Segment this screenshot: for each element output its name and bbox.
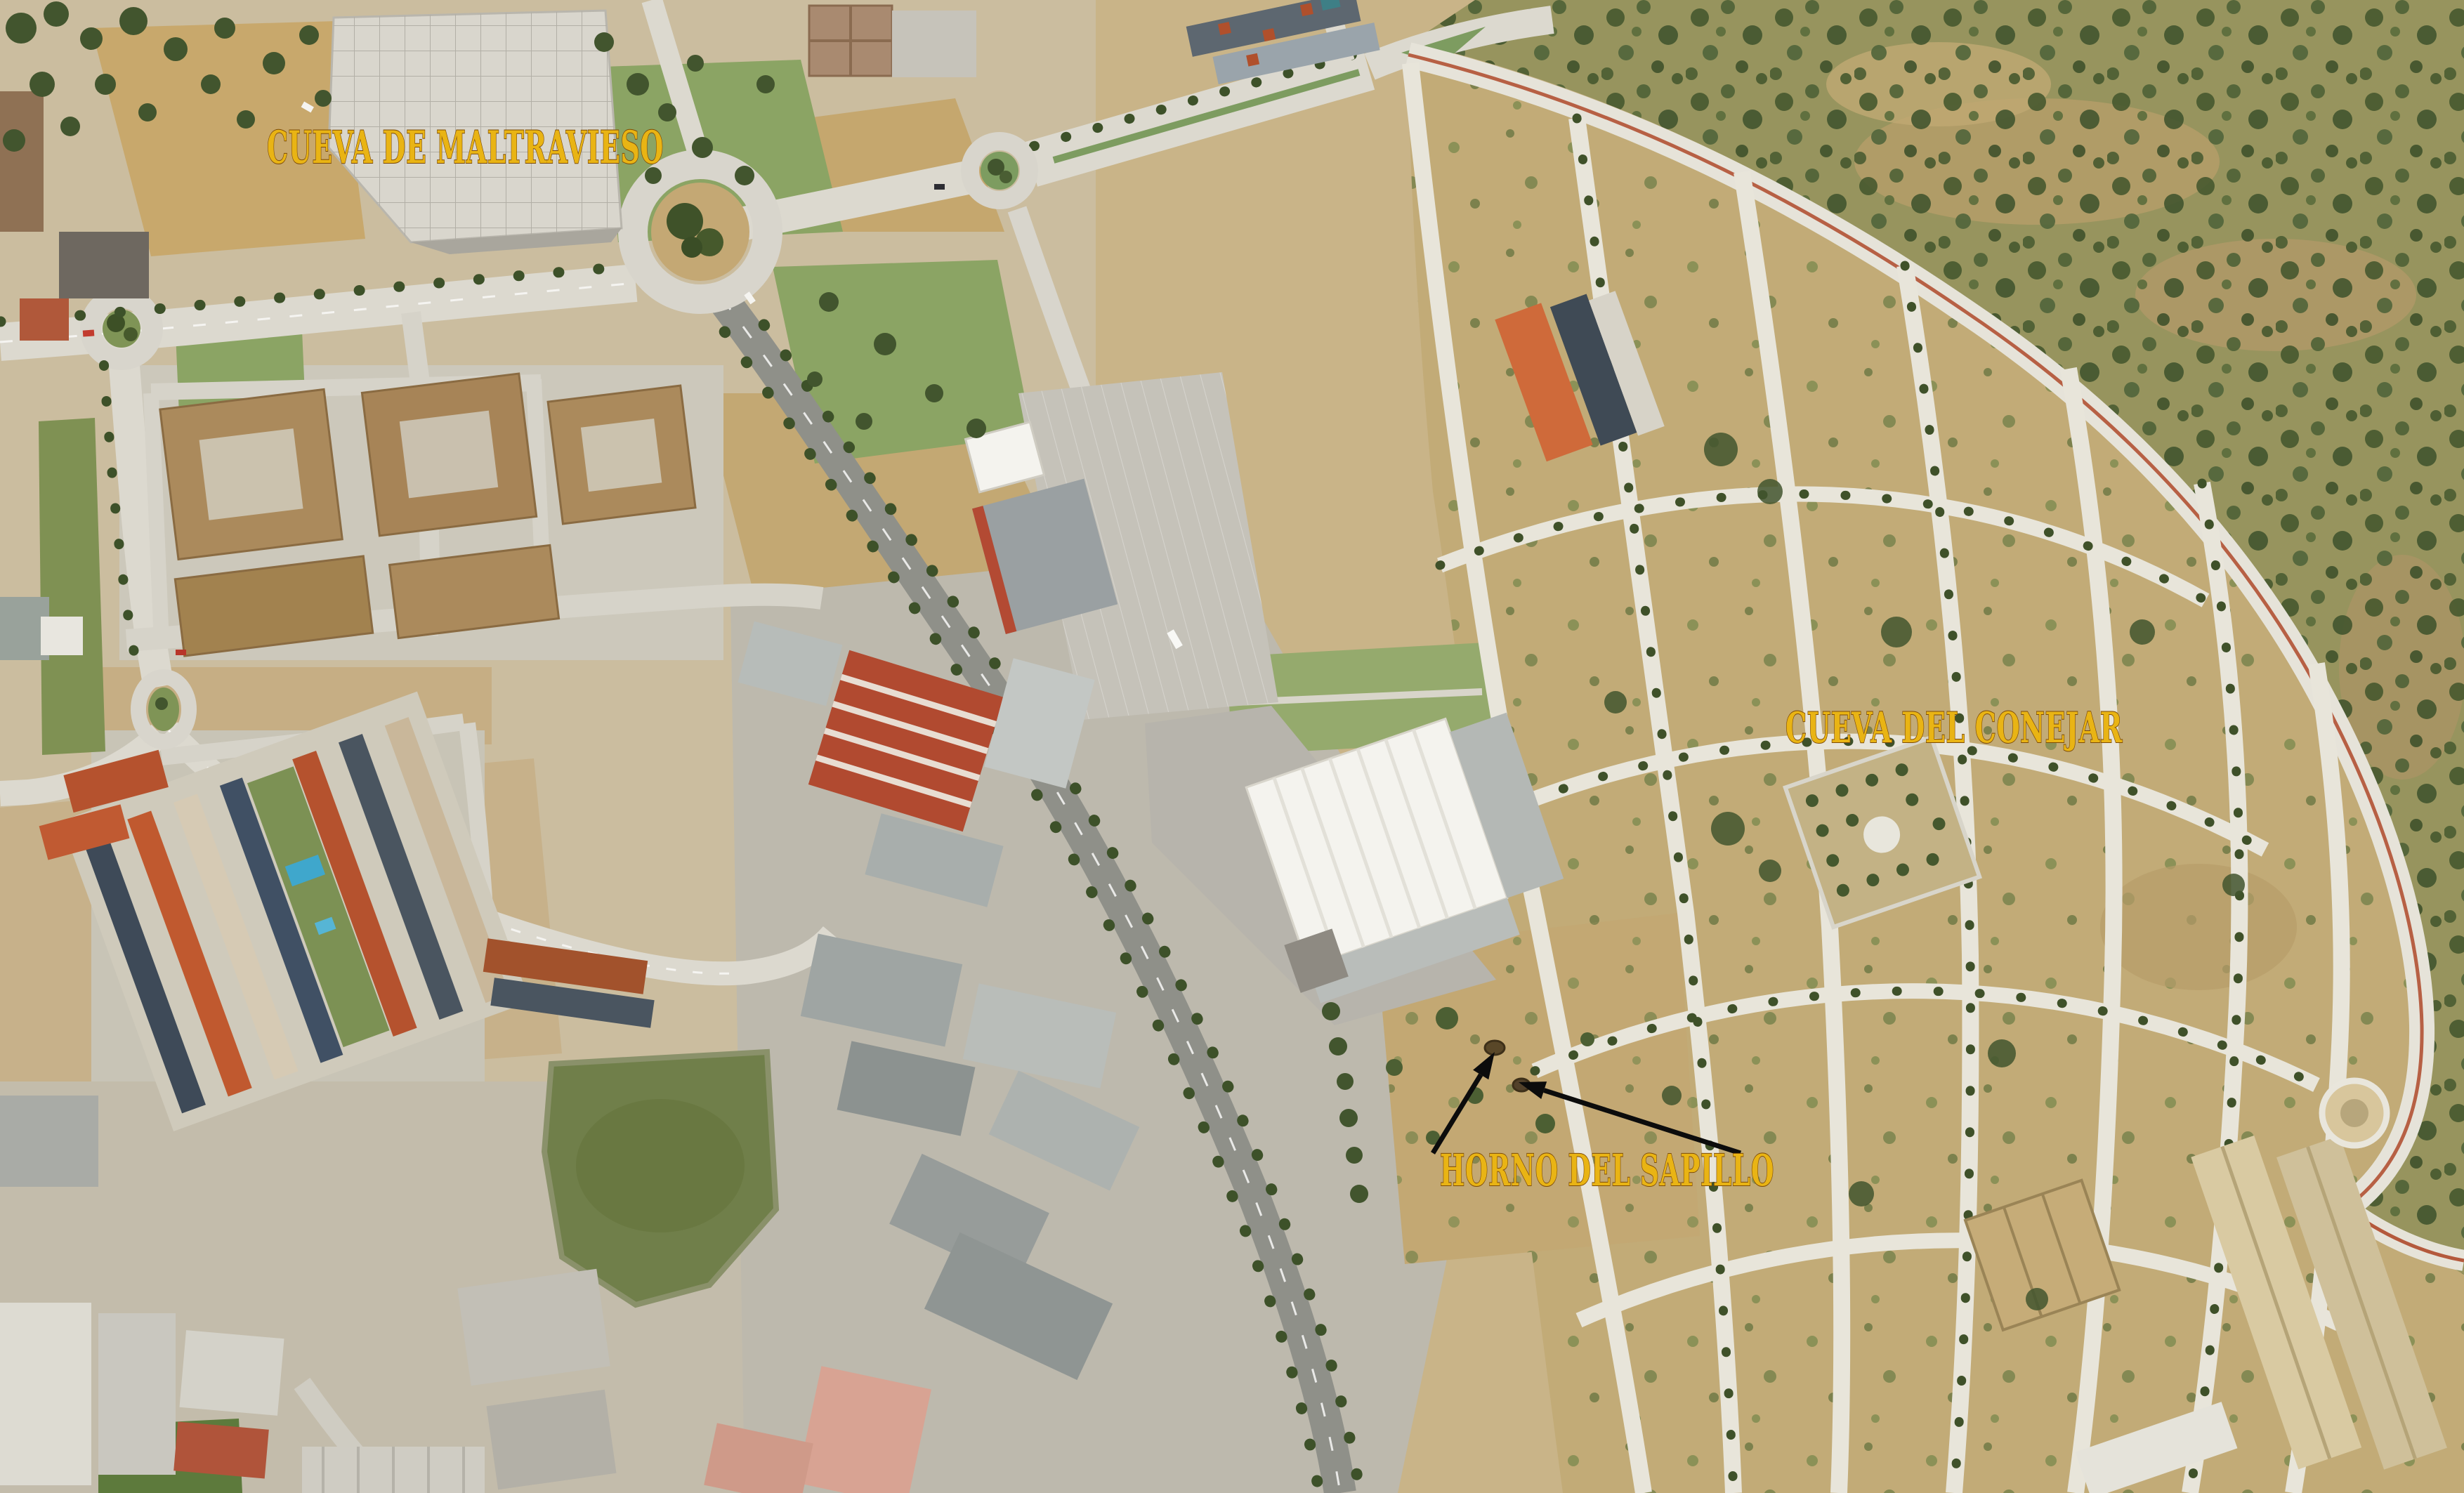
warehouse: [0, 1303, 91, 1485]
car: [176, 650, 186, 655]
car: [934, 184, 945, 190]
building: [0, 91, 44, 232]
warehouse: [457, 1269, 610, 1386]
school-yard: [892, 11, 976, 77]
building: [59, 232, 149, 298]
warehouse: [486, 1390, 616, 1489]
courtyard: [199, 428, 303, 520]
label-cueva-de-maltravieso: CUEVA DE MALTRAVIESO: [267, 121, 664, 174]
circular-plaza: [2322, 1081, 2387, 1145]
aerial-map: CUEVA DE MALTRAVIESO CUEVA DEL CONEJAR H…: [0, 0, 2464, 1493]
warehouse: [179, 1330, 284, 1416]
courtyard: [400, 411, 498, 499]
warehouse: [98, 1313, 176, 1475]
hedgerow: [39, 418, 105, 755]
warehouse: [0, 1096, 98, 1187]
label-horno-del-sapillo: HORNO DEL SAPILLO: [1440, 1145, 1774, 1196]
building: [41, 617, 83, 655]
red-roof-shed: [173, 1421, 269, 1478]
courtyard: [581, 419, 662, 492]
aerial-photo-canvas: CUEVA DE MALTRAVIESO CUEVA DEL CONEJAR H…: [0, 0, 2464, 1493]
car: [83, 329, 95, 336]
red-roof-house: [20, 298, 69, 341]
label-cueva-del-conejar: CUEVA DEL CONEJAR: [1785, 704, 2123, 753]
roundabout-small: [970, 141, 1029, 200]
